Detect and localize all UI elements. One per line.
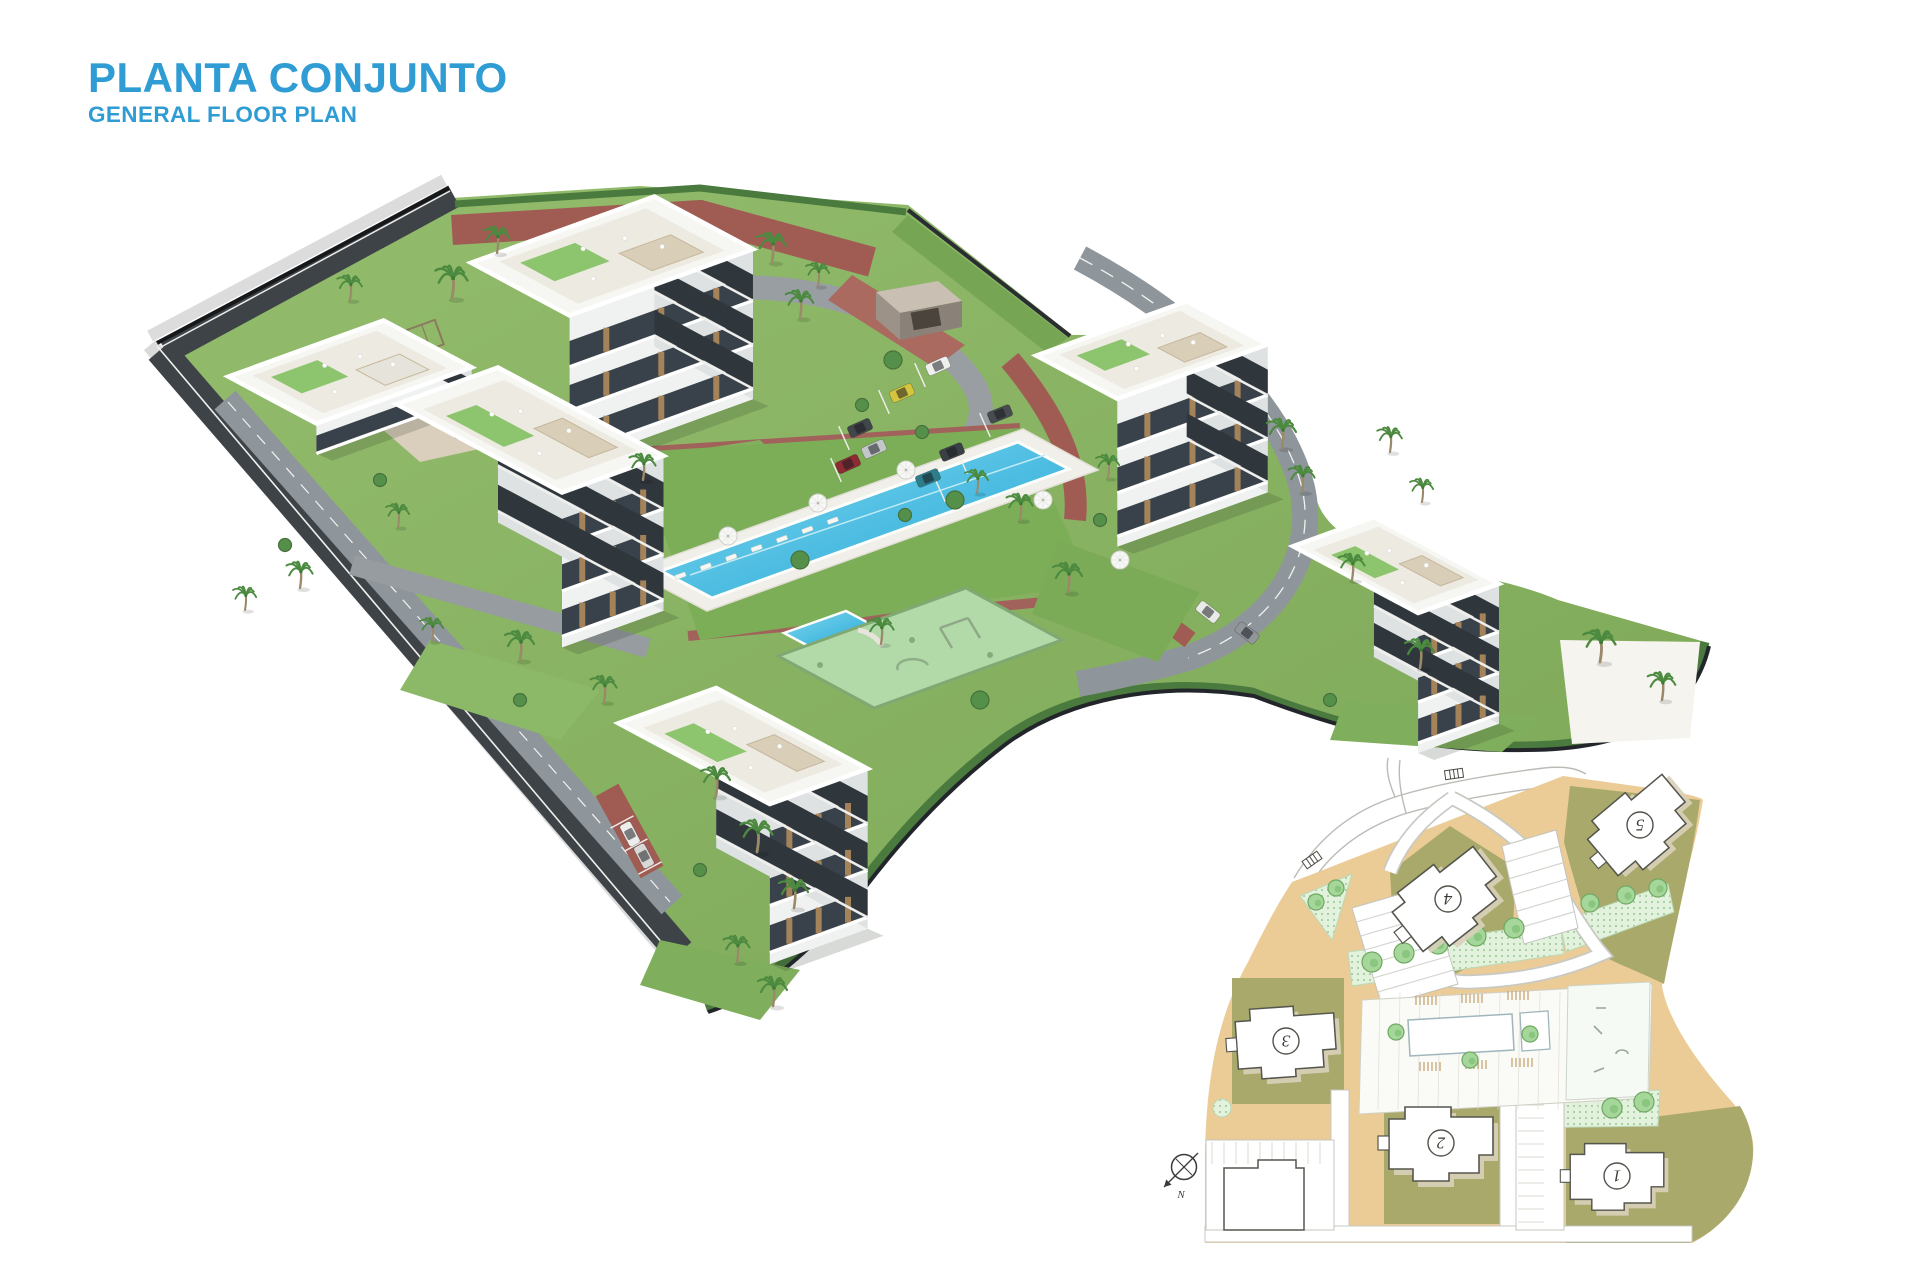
parasol — [719, 527, 737, 545]
building-5-label: 5 — [1636, 816, 1645, 835]
building-4-label: 4 — [1443, 890, 1452, 909]
parasol — [1111, 551, 1129, 569]
round-tree — [279, 539, 292, 552]
round-tree — [971, 691, 989, 709]
building-3-label: 3 — [1282, 1032, 1292, 1051]
round-tree — [856, 399, 869, 412]
compass-north-label: N — [1176, 1189, 1185, 1201]
round-tree — [1094, 514, 1107, 527]
masterplan-graphic: 1 2 3 4 5 N — [0, 0, 1920, 1280]
inset-amenity — [1359, 982, 1652, 1114]
round-tree — [514, 694, 527, 707]
inset-gate — [1444, 768, 1463, 779]
page-title: PLANTA CONJUNTO — [88, 56, 508, 100]
round-tree — [884, 351, 902, 369]
round-tree — [899, 509, 912, 522]
round-tree — [791, 551, 809, 569]
round-tree — [694, 864, 707, 877]
palm-tree — [287, 562, 313, 592]
building-2-label: 2 — [1436, 1134, 1445, 1153]
parasol — [1034, 491, 1052, 509]
inset-clubhouse-footprint — [1224, 1160, 1304, 1230]
parasol — [897, 461, 915, 479]
page: PLANTA CONJUNTO GENERAL FLOOR PLAN — [0, 0, 1920, 1280]
inset-plaza — [1566, 982, 1650, 1100]
page-subtitle: GENERAL FLOOR PLAN — [88, 104, 508, 127]
title-block: PLANTA CONJUNTO GENERAL FLOOR PLAN — [88, 56, 508, 127]
palm-tree — [1410, 479, 1433, 506]
inset-pool — [1408, 1014, 1514, 1056]
round-tree — [916, 426, 929, 439]
north-compass: N — [1164, 1153, 1198, 1201]
round-tree — [1324, 694, 1337, 707]
parasol — [809, 494, 827, 512]
site-plan-inset: 1 2 3 4 5 N — [1164, 758, 1753, 1243]
palm-tree — [233, 587, 256, 614]
round-tree — [374, 474, 387, 487]
building-1-label: 1 — [1613, 1167, 1622, 1186]
inset-gate — [1302, 851, 1322, 869]
palm-tree — [1377, 427, 1402, 456]
round-tree — [946, 491, 964, 509]
